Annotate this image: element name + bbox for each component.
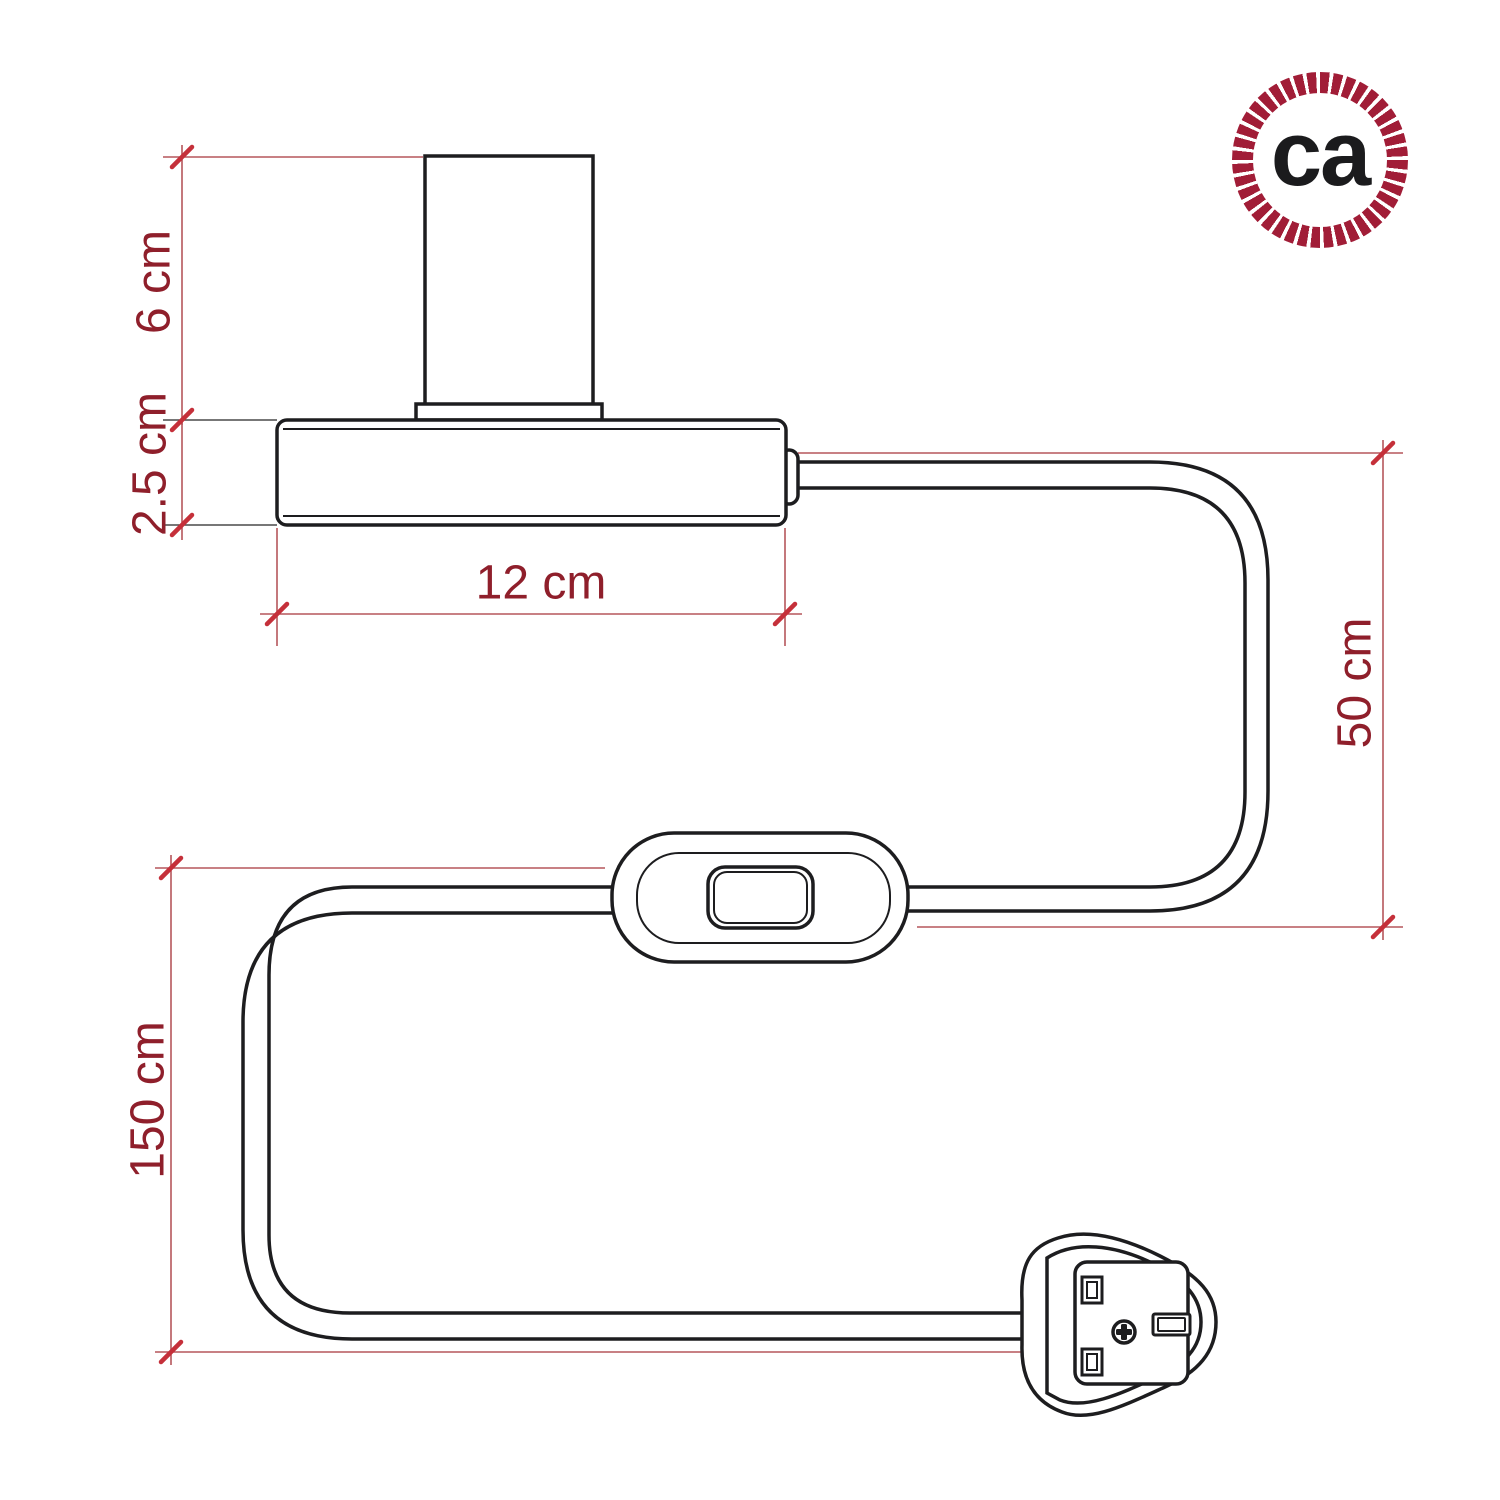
plug-pin-bottom [1082,1349,1102,1375]
plug-pin-top [1082,1277,1102,1303]
plug-earth-pin [1153,1314,1190,1335]
lamp-base-drawing [277,420,798,525]
lamp-holder-ring [416,404,602,420]
dimension-diagram: 6 cm 2.5 cm 12 cm 50 cm 150 cm ca [0,0,1500,1500]
brand-logo: ca [1232,72,1408,248]
uk-plug-drawing [1022,1234,1216,1415]
inline-switch-drawing [612,833,908,962]
plug-screw [1113,1321,1135,1343]
dim-label-cable-base-to-switch: 50 cm [1328,618,1383,749]
brand-logo-text: ca [1232,66,1408,242]
dim-label-base-width: 12 cm [476,556,607,611]
dimension-socket-height [163,145,423,425]
lamp-holder-drawing [416,156,602,420]
dim-label-cable-switch-to-plug: 150 cm [121,1021,176,1178]
power-cable-lower [243,887,1022,1339]
dimension-base-thickness [163,410,277,540]
dim-label-base-thickness: 2.5 cm [123,392,178,536]
dim-label-socket-height: 6 cm [127,230,182,334]
